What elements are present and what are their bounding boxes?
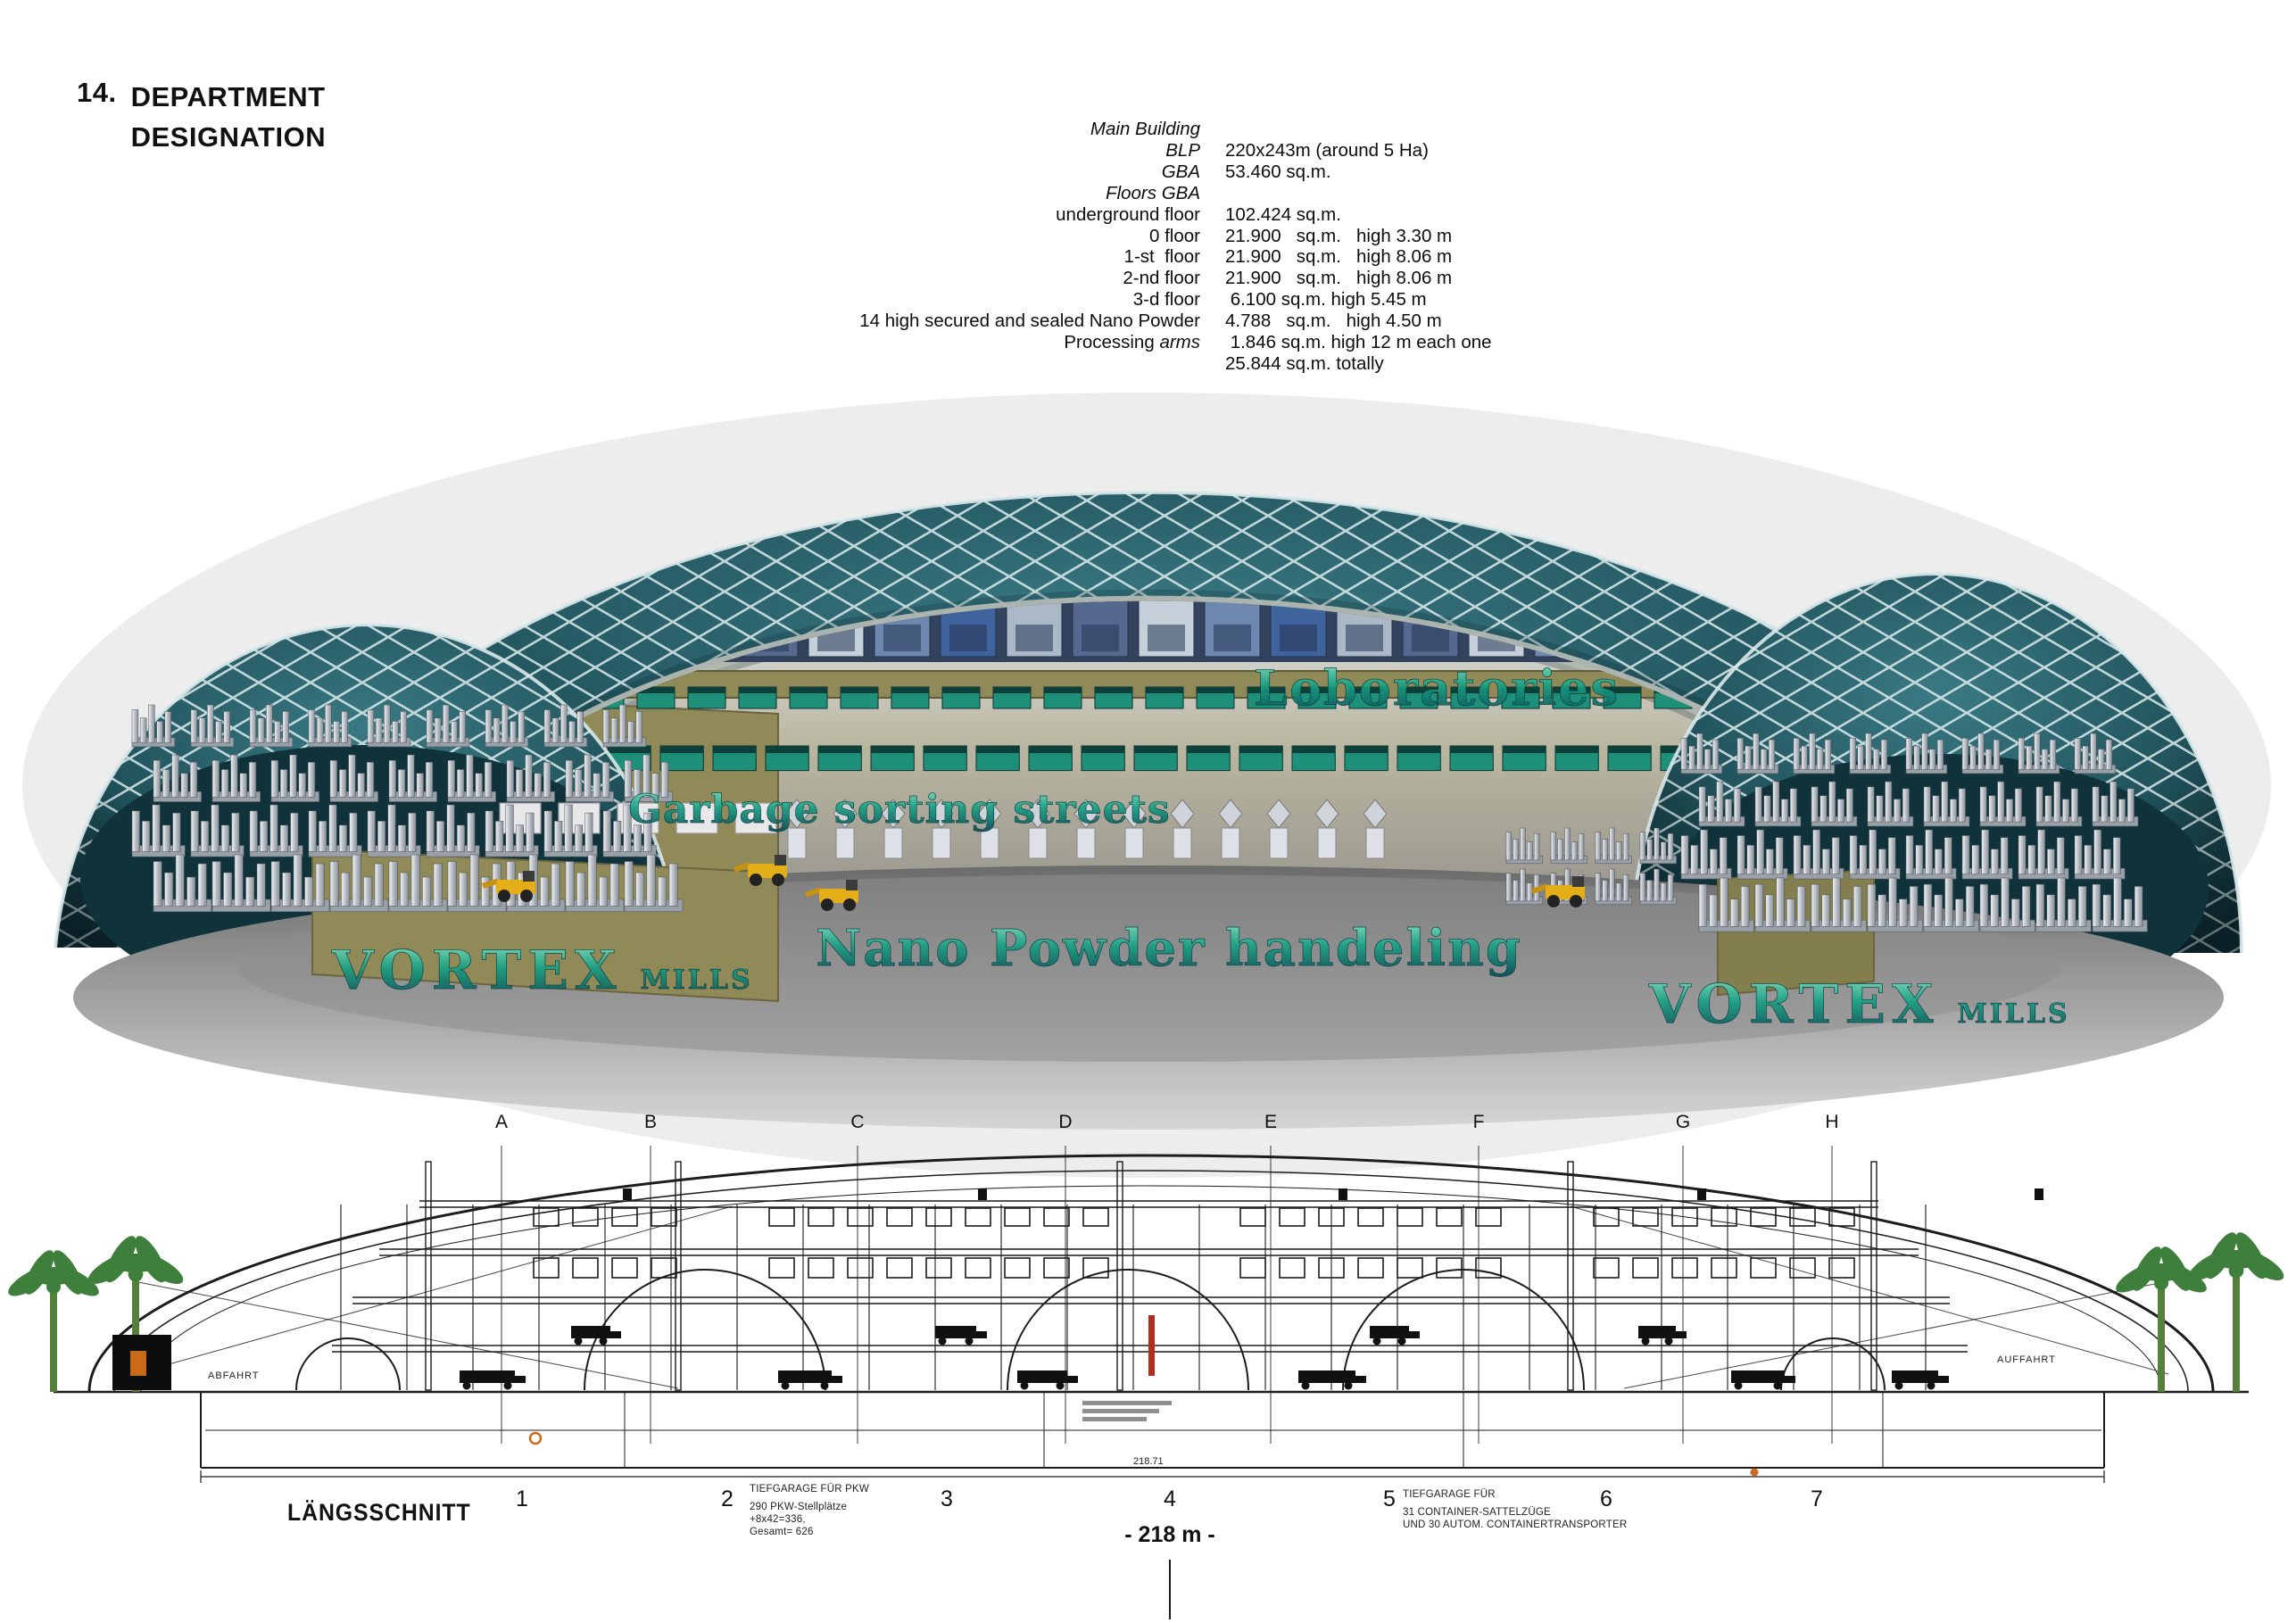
- page: 14. DEPARTMENT DESIGNATION Main Building…: [0, 0, 2296, 1623]
- grid-letter: B: [644, 1112, 657, 1133]
- grid-letter: H: [1825, 1112, 1838, 1133]
- garage-right-note: TIEFGARAGE FÜR31 CONTAINER-SATTELZÜGEUND…: [1403, 1488, 1627, 1531]
- grid-letter: C: [850, 1112, 864, 1133]
- grid-letter: A: [495, 1112, 508, 1133]
- auffahrt-label: AUFFAHRT: [1997, 1354, 2056, 1365]
- grid-letter: D: [1058, 1112, 1072, 1133]
- note-line: Gesamt= 626: [750, 1526, 869, 1538]
- garage-left-note: TIEFGARAGE FÜR PKW290 PKW-Stellplätze+8x…: [750, 1483, 869, 1538]
- grid-number: 7: [1811, 1486, 1823, 1512]
- note-line: TIEFGARAGE FÜR: [1403, 1488, 1627, 1501]
- grid-number: 3: [941, 1486, 953, 1512]
- total-dimension: 218.71: [1133, 1456, 1164, 1467]
- grid-number: 4: [1164, 1486, 1176, 1512]
- grid-letter: F: [1473, 1112, 1485, 1133]
- section-outline: [54, 1155, 2249, 1619]
- length-label: - 218 m -: [1124, 1522, 1214, 1548]
- grid-number: 2: [721, 1486, 734, 1512]
- grid-letter: E: [1264, 1112, 1277, 1133]
- grid-number: 5: [1383, 1486, 1396, 1512]
- note-line: TIEFGARAGE FÜR PKW: [750, 1483, 869, 1495]
- grid-number: 1: [516, 1486, 528, 1512]
- section-details: [4, 1146, 2288, 1477]
- note-line: 290 PKW-Stellplätze: [750, 1501, 869, 1513]
- section-drawing: [0, 0, 2296, 1623]
- drawing-title: LÄNGSSCHNITT: [287, 1499, 471, 1527]
- abfahrt-label: ABFAHRT: [208, 1370, 260, 1381]
- note-line: 31 CONTAINER-SATTELZÜGE: [1403, 1506, 1627, 1519]
- note-line: UND 30 AUTOM. CONTAINERTRANSPORTER: [1403, 1519, 1627, 1531]
- note-line: +8x42=336,: [750, 1513, 869, 1526]
- grid-letter: G: [1676, 1112, 1690, 1133]
